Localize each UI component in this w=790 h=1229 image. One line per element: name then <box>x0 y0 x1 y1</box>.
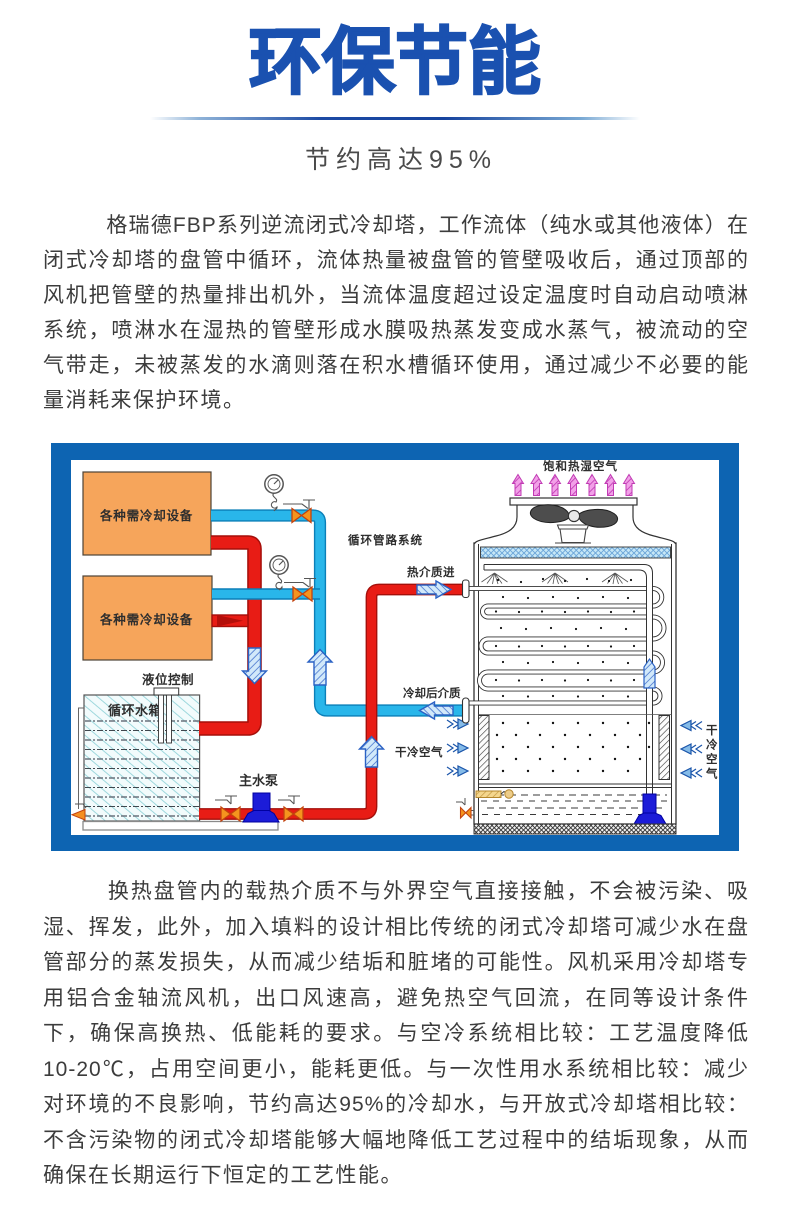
svg-text:各种需冷却设备: 各种需冷却设备 <box>99 612 193 627</box>
svg-text:气: 气 <box>705 767 718 781</box>
svg-text:各种需冷却设备: 各种需冷却设备 <box>99 508 193 523</box>
svg-text:循环管路系统: 循环管路系统 <box>347 533 423 547</box>
svg-text:干: 干 <box>706 724 718 737</box>
svg-text:空: 空 <box>706 752 718 766</box>
svg-text:主水泵: 主水泵 <box>239 773 278 788</box>
svg-text:冷: 冷 <box>706 738 718 752</box>
svg-text:热介质进: 热介质进 <box>407 565 455 579</box>
svg-text:液位控制: 液位控制 <box>142 672 194 687</box>
svg-text:饱和热湿空气: 饱和热湿空气 <box>543 459 618 473</box>
svg-text:干冷空气: 干冷空气 <box>395 745 443 759</box>
svg-text:循环水箱: 循环水箱 <box>108 703 162 718</box>
svg-text:冷却后介质: 冷却后介质 <box>403 686 461 700</box>
